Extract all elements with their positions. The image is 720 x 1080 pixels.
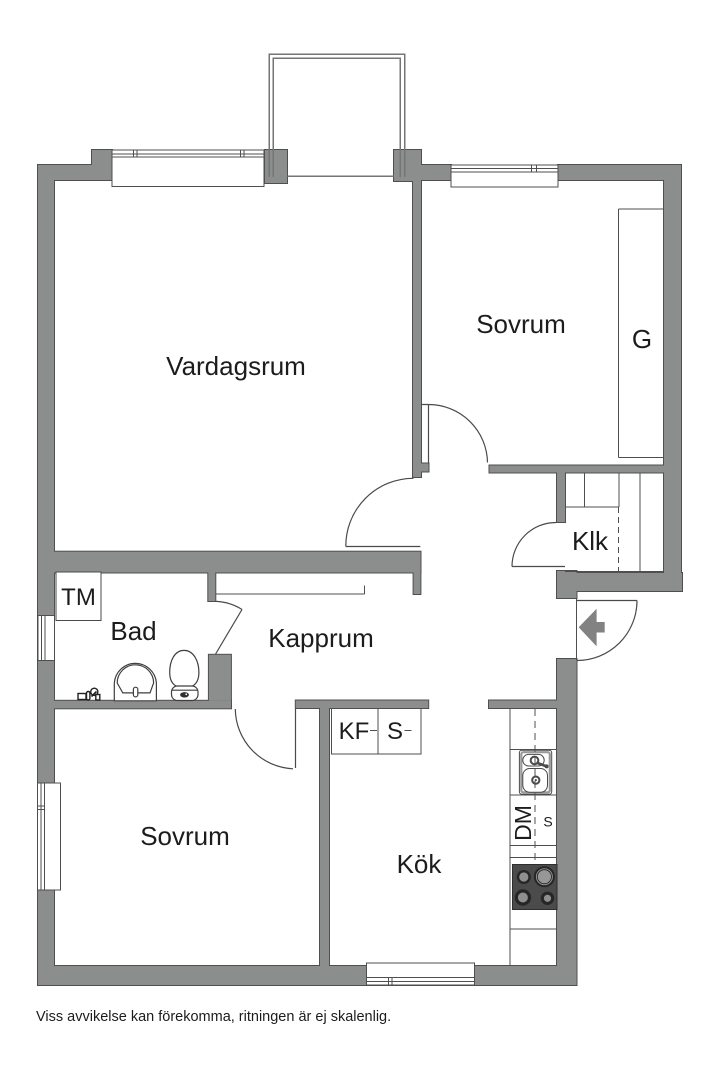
svg-text:Sovrum: Sovrum	[140, 821, 230, 851]
svg-text:Viss avvikelse kan förekomma,: Viss avvikelse kan förekomma, ritningen …	[36, 1009, 391, 1025]
svg-text:DM: DM	[510, 805, 536, 841]
svg-text:KF: KF	[339, 718, 370, 745]
svg-text:Bad: Bad	[110, 616, 156, 646]
svg-text:G: G	[632, 324, 652, 354]
svg-text:TM: TM	[61, 584, 96, 611]
svg-text:Kapprum: Kapprum	[268, 623, 374, 653]
svg-text:Vardagsrum: Vardagsrum	[166, 351, 306, 381]
svg-text:S: S	[387, 718, 403, 745]
svg-text:Sovrum: Sovrum	[476, 309, 566, 339]
svg-text:Klk: Klk	[572, 526, 609, 556]
svg-text:S: S	[543, 814, 552, 830]
svg-text:Kök: Kök	[397, 849, 443, 879]
